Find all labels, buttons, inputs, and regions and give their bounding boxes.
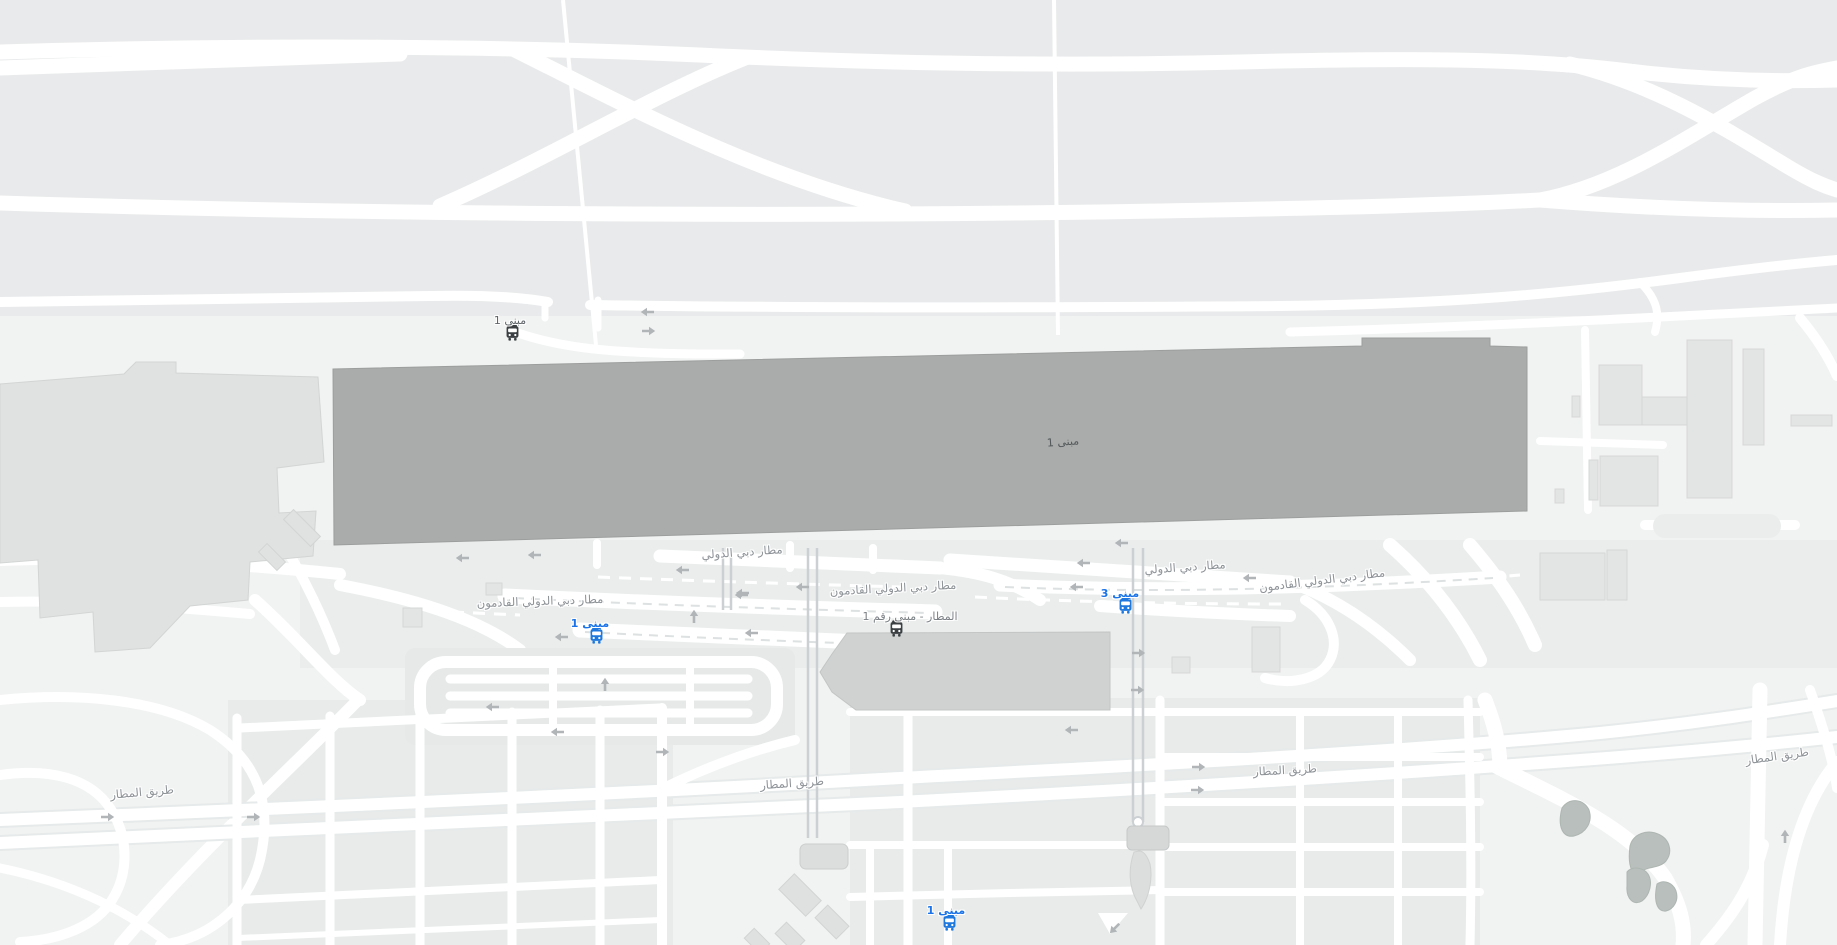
map-viewport[interactable]: مطار دبي الدولي مطار دبي الدولي القادمون… <box>0 0 1837 945</box>
bus-stop-label: مبنى 1 <box>571 617 609 630</box>
bus-stop-marker[interactable]: المطار - مبنى رقم 1 <box>889 620 904 638</box>
bus-stop-marker[interactable]: مبنى 1 <box>505 324 520 342</box>
bus-stop-label: مبنى 1 <box>494 314 526 327</box>
road-median-island <box>1653 514 1781 538</box>
arrivals-building <box>820 632 1110 710</box>
transit-station <box>1127 826 1169 850</box>
terminal-1-building[interactable] <box>333 338 1527 545</box>
map-canvas[interactable] <box>0 0 1837 945</box>
bus-stop-marker[interactable]: مبنى 3 <box>1118 597 1133 615</box>
transit-station <box>800 844 848 869</box>
bus-stop-marker[interactable]: مبنى 1 <box>942 914 957 932</box>
bus-stop-marker[interactable]: مبنى 1 <box>589 627 604 645</box>
bus-stop-label: المطار - مبنى رقم 1 <box>863 610 958 623</box>
bus-stop-label: مبنى 3 <box>1101 587 1139 600</box>
bus-stop-label: مبنى 1 <box>927 904 965 917</box>
